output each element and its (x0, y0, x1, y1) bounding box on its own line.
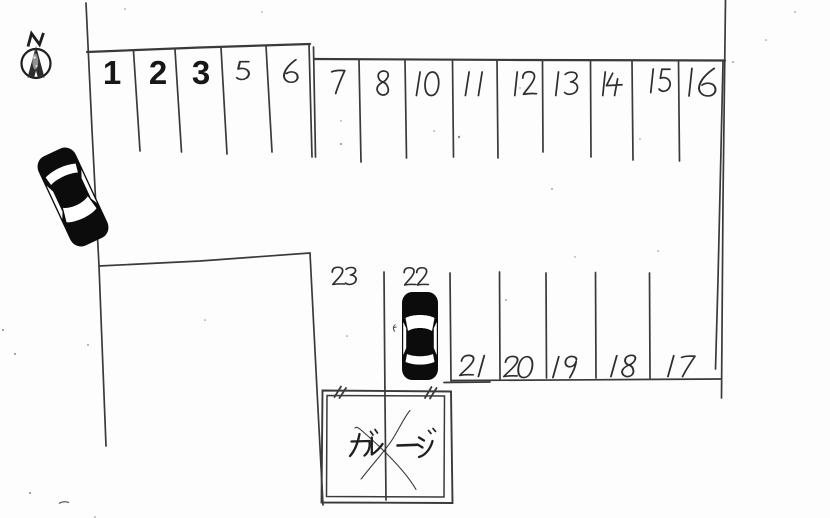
svg-text:1: 1 (103, 54, 121, 91)
svg-text:2: 2 (149, 54, 167, 91)
svg-text:3: 3 (192, 54, 210, 91)
